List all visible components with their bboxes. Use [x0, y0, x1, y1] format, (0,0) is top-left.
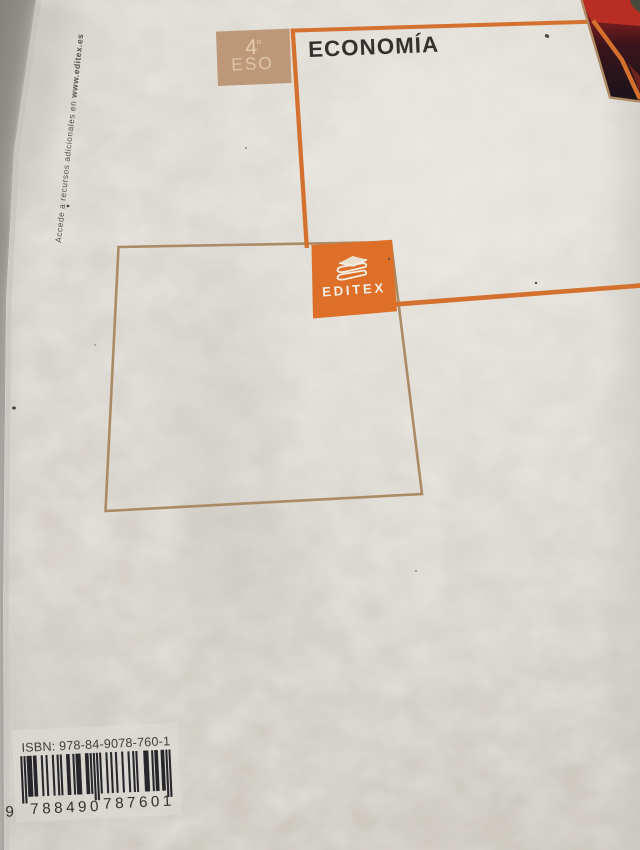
- svg-text:ESO: ESO: [231, 53, 274, 75]
- svg-text:788490: 788490: [30, 798, 102, 818]
- svg-text:787601: 787601: [103, 793, 175, 813]
- svg-text:ECONOMÍA: ECONOMÍA: [308, 32, 440, 62]
- svg-text:9: 9: [5, 803, 14, 820]
